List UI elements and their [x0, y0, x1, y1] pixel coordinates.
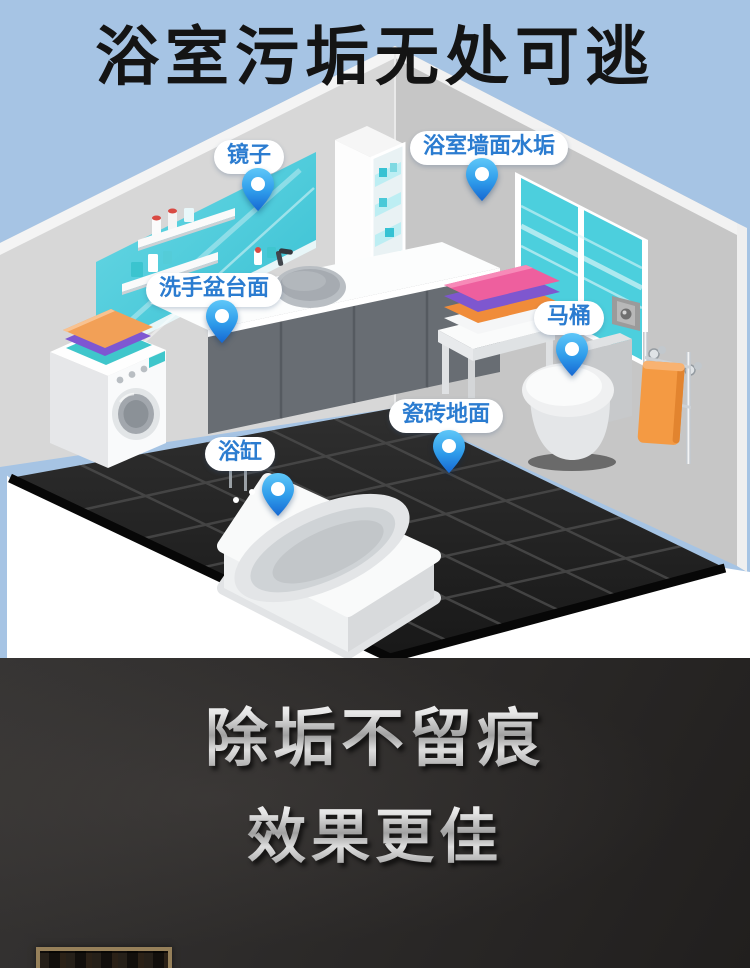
- location-pin-bathtub: [259, 471, 297, 519]
- orange-towel: [637, 361, 685, 446]
- slogan-line-1: 除垢不留痕: [0, 688, 750, 779]
- location-pin-icon: [239, 166, 277, 214]
- picture-frame: [36, 947, 172, 968]
- location-pin-icon: [553, 331, 591, 379]
- callout-bathtub: 浴缸: [205, 437, 275, 471]
- location-pin-toilet: [553, 331, 591, 379]
- location-pin-basin-counter: [203, 298, 241, 346]
- location-pin-icon: [430, 428, 468, 476]
- location-pin-tile-floor: [430, 428, 468, 476]
- location-pin-mirror: [239, 166, 277, 214]
- page-title: 浴室污垢无处可逃: [0, 6, 750, 98]
- location-pin-wall-scale: [463, 156, 501, 204]
- slogan-line-2: 效果更佳: [0, 789, 750, 874]
- location-pin-icon: [259, 471, 297, 519]
- slogan-section: 除垢不留痕 效果更佳: [0, 658, 750, 968]
- callout-toilet: 马桶: [534, 301, 604, 335]
- location-pin-icon: [203, 298, 241, 346]
- bathroom-isometric-illustration: [0, 0, 750, 658]
- hero-section: 浴室污垢无处可逃 镜子 浴室墙面水垢 洗手盆台面 马桶 瓷砖地面 浴缸: [0, 0, 750, 658]
- location-pin-icon: [463, 156, 501, 204]
